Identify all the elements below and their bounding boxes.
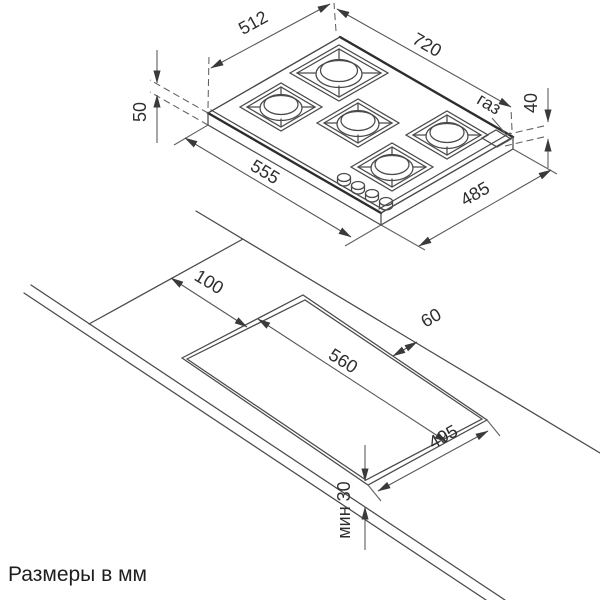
dim-cutout-width: 560 bbox=[325, 344, 361, 377]
dimension-diagram: газ 512 720 50 40 bbox=[0, 0, 600, 600]
dim-cutout-depth: 495 bbox=[425, 421, 461, 453]
dim-hob-depth-right: 485 bbox=[457, 178, 493, 210]
units-note: Размеры в мм bbox=[8, 563, 147, 586]
technical-drawing-page: газ 512 720 50 40 bbox=[0, 0, 600, 600]
dim-hob-width-total: 720 bbox=[409, 29, 445, 61]
dimension-cutout-100: 100 bbox=[171, 266, 247, 327]
dim-hob-height-left: 50 bbox=[130, 102, 150, 122]
dim-hob-height-right: 40 bbox=[521, 93, 541, 113]
dim-cutout-min-front: мин 30 bbox=[334, 481, 354, 538]
dimension-cutout-min30: мин 30 bbox=[334, 445, 365, 550]
worktop-cutout-view: 100 60 560 495 мин 30 bbox=[24, 211, 600, 600]
dimension-cutout-560: 560 bbox=[258, 319, 447, 442]
worktop-back-edge bbox=[196, 211, 600, 453]
dimension-cutout-495: 495 bbox=[368, 420, 500, 501]
dim-hob-width-top: 512 bbox=[235, 7, 271, 39]
dim-cutout-offset-back: 60 bbox=[417, 304, 444, 331]
dimension-hob-50: 50 bbox=[130, 50, 208, 143]
worktop-front-thickness-edge bbox=[24, 293, 486, 600]
dimension-cutout-60: 60 bbox=[393, 304, 445, 356]
dim-hob-depth-left: 555 bbox=[247, 156, 283, 189]
gas-label: газ bbox=[474, 89, 505, 119]
worktop-surface bbox=[24, 211, 600, 600]
dim-cutout-offset-left: 100 bbox=[191, 266, 227, 299]
hob-isometric-view: газ 512 720 50 40 bbox=[130, 3, 557, 250]
